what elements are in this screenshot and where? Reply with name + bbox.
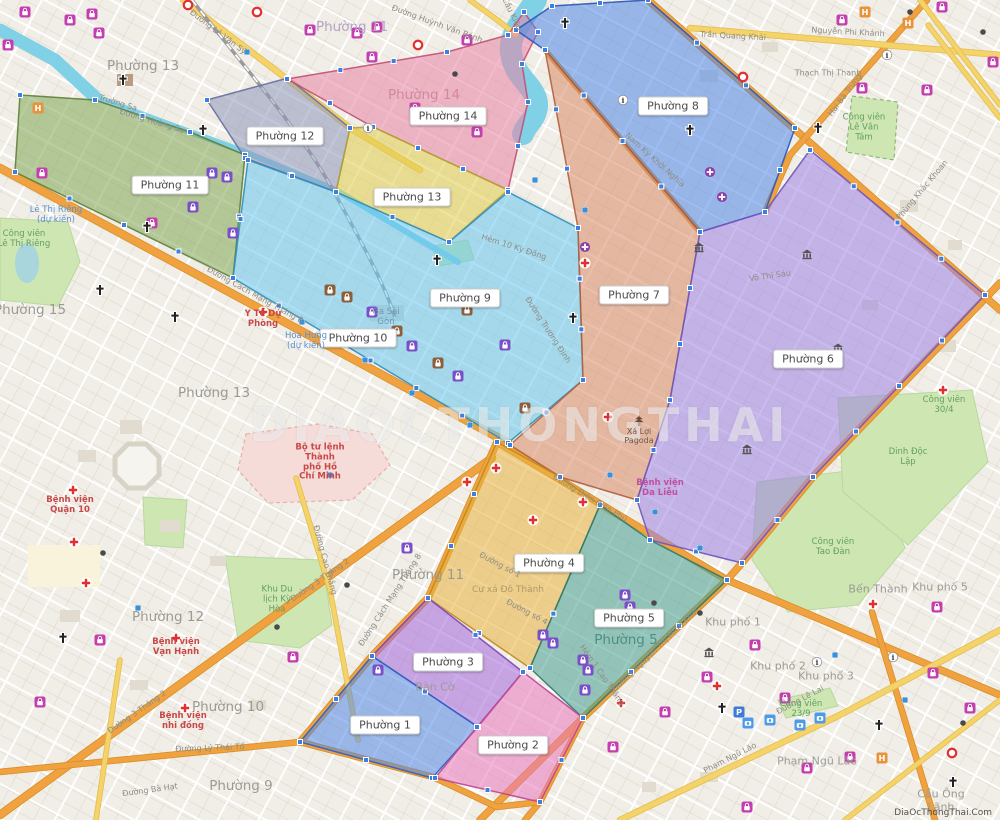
boundary-marker xyxy=(678,342,683,347)
boundary-marker xyxy=(433,776,438,781)
park-area xyxy=(846,96,898,160)
map-icon-bag[interactable] xyxy=(372,22,383,33)
map-icon-dot[interactable] xyxy=(452,71,458,77)
boundary-marker xyxy=(328,101,333,106)
building-block xyxy=(60,610,80,622)
building-block xyxy=(160,520,180,532)
map-icon-bag[interactable] xyxy=(660,707,671,718)
road xyxy=(620,630,1000,820)
boundary-marker xyxy=(514,28,519,33)
boundary-marker xyxy=(473,633,478,638)
boundary-marker xyxy=(334,697,339,702)
boundary-marker xyxy=(677,624,682,629)
map-icon-bus[interactable] xyxy=(532,177,538,183)
building-block xyxy=(130,680,148,690)
map-icon-med[interactable] xyxy=(491,463,502,474)
map-icon-bus[interactable] xyxy=(244,49,250,55)
ward-label-phuong-13[interactable]: Phường 13 xyxy=(374,188,451,207)
map-icon-lock[interactable] xyxy=(228,228,239,239)
map-icon-lock[interactable] xyxy=(373,665,384,676)
map-icon-dot[interactable] xyxy=(274,624,280,630)
boundary-marker xyxy=(426,596,431,601)
map-icon-lock[interactable] xyxy=(578,655,589,666)
map-icon-hotel[interactable] xyxy=(860,7,871,18)
map-icon-bag[interactable] xyxy=(3,40,14,51)
map-icon-med[interactable] xyxy=(616,698,627,709)
park-area xyxy=(0,218,80,306)
map-icon-lock[interactable] xyxy=(402,543,413,554)
boundary-marker xyxy=(391,59,396,64)
boundary-marker xyxy=(581,378,586,383)
boundary-marker xyxy=(629,670,634,675)
boundary-marker xyxy=(140,114,145,119)
map-icon-lockb[interactable] xyxy=(342,292,353,303)
ward-label-phuong-11[interactable]: Phường 11 xyxy=(132,176,209,195)
boundary-marker xyxy=(520,62,525,67)
boundary-marker xyxy=(688,286,693,291)
boundary-marker xyxy=(472,492,477,497)
park-area xyxy=(225,556,332,648)
boundary-marker xyxy=(581,93,586,98)
boundary-marker xyxy=(93,98,98,103)
boundary-marker xyxy=(648,538,653,543)
boundary-marker xyxy=(811,475,816,480)
map-icon-dot[interactable] xyxy=(697,610,703,616)
map-icon-lock[interactable] xyxy=(367,307,378,318)
ward-label-phuong-9[interactable]: Phường 9 xyxy=(430,289,500,308)
map-icon-info[interactable] xyxy=(363,123,373,133)
map-icon-bag[interactable] xyxy=(95,635,106,646)
map-icon-church[interactable] xyxy=(875,720,882,730)
boundary-marker xyxy=(897,384,902,389)
boundary-marker xyxy=(368,358,373,363)
map-icon-bag[interactable] xyxy=(65,15,76,26)
boundary-marker xyxy=(620,139,625,144)
boundary-marker xyxy=(565,166,570,171)
map-icon-plusp[interactable] xyxy=(705,167,715,177)
map-icon-bus[interactable] xyxy=(467,422,473,428)
map-icon-lock[interactable] xyxy=(222,172,233,183)
boundary-marker xyxy=(577,276,582,281)
boundary-marker xyxy=(526,100,531,105)
boundary-marker xyxy=(122,223,127,228)
map-icon-bus[interactable] xyxy=(902,697,908,703)
map-icon-med[interactable] xyxy=(180,703,191,714)
ward-label-phuong-3[interactable]: Phường 3 xyxy=(413,653,483,672)
boundary-marker xyxy=(579,327,584,332)
map-icon-med[interactable] xyxy=(578,497,589,508)
map-icon-bag[interactable] xyxy=(845,752,856,763)
map-icon-bag[interactable] xyxy=(305,25,316,36)
ward-label-phuong-1[interactable]: Phường 1 xyxy=(350,716,420,735)
boundary-marker xyxy=(506,33,511,38)
map-icon-lock[interactable] xyxy=(620,590,631,601)
boundary-marker xyxy=(18,93,23,98)
boundary-marker xyxy=(461,167,466,172)
map-icon-church[interactable] xyxy=(814,123,821,133)
boundary-marker xyxy=(543,48,548,53)
boundary-marker xyxy=(13,170,18,175)
boundary-marker xyxy=(695,40,700,45)
map-icon-med[interactable] xyxy=(462,477,473,488)
boundary-marker xyxy=(740,561,745,566)
map-icon-photo[interactable] xyxy=(743,718,754,729)
canal-water xyxy=(0,30,95,97)
map-icon-bag[interactable] xyxy=(988,57,999,68)
boundary-marker xyxy=(238,217,243,222)
building-block xyxy=(210,556,226,566)
map-icon-med[interactable] xyxy=(81,578,92,589)
map-icon-lock[interactable] xyxy=(583,665,594,676)
map-icon-med[interactable] xyxy=(603,412,614,423)
boundary-marker xyxy=(983,293,988,298)
map-icon-bag[interactable] xyxy=(462,35,473,46)
map-icon-dot[interactable] xyxy=(960,720,966,726)
map-icon-photo[interactable] xyxy=(795,720,806,731)
boundary-marker xyxy=(364,758,369,763)
boundary-marker xyxy=(538,800,543,805)
boundary-marker xyxy=(67,196,72,201)
map-icon-info[interactable] xyxy=(888,652,898,662)
ward-label-phuong-7[interactable]: Phường 7 xyxy=(599,286,669,305)
map-icon-plusp[interactable] xyxy=(580,242,590,252)
map-icon-bag[interactable] xyxy=(922,85,933,96)
map-icon-bag[interactable] xyxy=(367,52,378,63)
map-icon-bus[interactable] xyxy=(582,207,588,213)
map-icon-info[interactable] xyxy=(882,50,892,60)
map-icon-bag[interactable] xyxy=(87,9,98,20)
boundary-marker xyxy=(551,611,556,616)
building-block xyxy=(250,700,266,710)
map-icon-bag[interactable] xyxy=(352,28,363,39)
boundary-marker xyxy=(276,303,281,308)
attribution-text: DiaOcThongThai.Com xyxy=(894,808,992,818)
map-icon-med[interactable] xyxy=(938,385,949,396)
boundary-marker xyxy=(554,107,559,112)
boundary-marker xyxy=(939,256,944,261)
boundary-marker xyxy=(414,386,419,391)
map-icon-hotel[interactable] xyxy=(903,18,914,29)
map-icon-bus[interactable] xyxy=(362,357,368,363)
map-icon-lock[interactable] xyxy=(580,685,591,696)
map-icon-bus[interactable] xyxy=(327,472,333,478)
map-icon-bus[interactable] xyxy=(652,509,658,515)
ward-label-phuong-4[interactable]: Phường 4 xyxy=(514,554,584,573)
military-area xyxy=(238,424,390,503)
map-icon-med[interactable] xyxy=(69,537,80,548)
building-block xyxy=(948,240,962,250)
map-canvas[interactable]: i H P DIAOCTHONGTHAI Phường 11Phường 12P… xyxy=(0,0,1000,820)
map-icon-lock[interactable] xyxy=(407,341,418,352)
map-icon-ring[interactable] xyxy=(414,41,422,49)
boundary-marker xyxy=(449,544,454,549)
boundary-marker xyxy=(516,144,521,149)
map-icon-bag[interactable] xyxy=(965,703,976,714)
boundary-marker xyxy=(854,429,859,434)
map-icon-bus[interactable] xyxy=(607,472,613,478)
map-icon-bag[interactable] xyxy=(37,168,48,179)
boundary-marker xyxy=(559,758,564,763)
boundary-marker xyxy=(176,249,181,254)
map-icon-bag[interactable] xyxy=(608,742,619,753)
boundary-marker xyxy=(338,68,343,73)
boundary-marker xyxy=(598,503,603,508)
map-icon-bag[interactable] xyxy=(750,640,761,651)
map-icon-med[interactable] xyxy=(528,515,539,526)
map-icon-med[interactable] xyxy=(868,599,879,610)
map-icon-med[interactable] xyxy=(68,485,79,496)
map-icon-plusp[interactable] xyxy=(717,192,727,202)
map-icon-lock[interactable] xyxy=(548,638,559,649)
boundary-marker xyxy=(544,410,549,415)
boundary-marker xyxy=(851,184,856,189)
map-icon-lockb[interactable] xyxy=(433,358,444,369)
boundary-marker xyxy=(348,126,353,131)
boundary-marker xyxy=(775,518,780,523)
boundary-marker xyxy=(646,0,651,3)
boundary-marker xyxy=(744,83,749,88)
stadium-octagon xyxy=(115,444,159,488)
map-icon-museum[interactable] xyxy=(704,648,714,658)
boundary-marker xyxy=(460,413,465,418)
map-icon-lockb[interactable] xyxy=(520,403,531,414)
map-icon-bag[interactable] xyxy=(802,763,813,774)
map-icon-bag[interactable] xyxy=(472,127,483,138)
map-icon-parking[interactable] xyxy=(734,707,745,718)
boundary-marker xyxy=(508,443,513,448)
boundary-marker xyxy=(246,158,251,163)
boundary-marker xyxy=(536,30,541,35)
boundary-marker xyxy=(188,130,193,135)
boundary-marker xyxy=(290,174,295,179)
road xyxy=(845,700,1000,820)
map-icon-bus[interactable] xyxy=(299,319,305,325)
boundary-marker xyxy=(895,220,900,225)
map-icon-bag[interactable] xyxy=(857,83,868,94)
boundary-marker xyxy=(334,190,339,195)
map-icon-med[interactable] xyxy=(258,307,269,318)
map-icon-ring[interactable] xyxy=(739,73,747,81)
map-icon-bag[interactable] xyxy=(288,652,299,663)
boundary-marker xyxy=(808,148,813,153)
boundary-marker xyxy=(231,276,236,281)
map-icon-bag[interactable] xyxy=(837,15,848,26)
building-block xyxy=(762,42,778,52)
map-icon-bag[interactable] xyxy=(932,602,943,613)
map-icon-info[interactable] xyxy=(618,95,628,105)
boundary-marker xyxy=(423,689,428,694)
map-icon-bag[interactable] xyxy=(35,697,46,708)
map-icon-church[interactable] xyxy=(59,633,66,643)
boundary-marker xyxy=(506,190,511,195)
boundary-marker xyxy=(522,10,527,15)
map-icon-photo[interactable] xyxy=(815,713,826,724)
boundary-marker xyxy=(370,654,375,659)
boundary-marker xyxy=(725,578,730,583)
ward-label-phuong-10[interactable]: Phường 10 xyxy=(320,329,397,348)
ward-label-phuong-12[interactable]: Phường 12 xyxy=(247,127,324,146)
boundary-marker xyxy=(558,475,563,480)
boundary-marker xyxy=(793,126,798,131)
boundary-marker xyxy=(447,240,452,245)
map-icon-dot[interactable] xyxy=(344,582,350,588)
building-block xyxy=(642,782,656,792)
ward-label-phuong-2[interactable]: Phường 2 xyxy=(478,736,548,755)
map-icon-bag[interactable] xyxy=(702,672,713,683)
boundary-marker xyxy=(550,4,555,9)
map-icon-church[interactable] xyxy=(171,312,178,322)
map-icon-lock[interactable] xyxy=(188,202,199,213)
map-icon-bus[interactable] xyxy=(135,605,141,611)
map-overlay-svg: i H P xyxy=(0,0,1000,820)
map-icon-photo[interactable] xyxy=(765,715,776,726)
map-icon-bag[interactable] xyxy=(742,802,753,813)
map-icon-info[interactable] xyxy=(812,657,822,667)
map-icon-dot[interactable] xyxy=(100,550,106,556)
road xyxy=(928,25,1000,118)
road xyxy=(470,0,516,35)
map-icon-dot[interactable] xyxy=(651,600,657,606)
map-icon-hotel[interactable] xyxy=(33,103,44,114)
boundary-marker xyxy=(581,716,586,721)
boundary-marker xyxy=(205,98,210,103)
map-icon-lockb[interactable] xyxy=(325,285,336,296)
map-icon-dot[interactable] xyxy=(980,29,986,35)
map-icon-church[interactable] xyxy=(96,285,103,295)
boundary-marker xyxy=(698,230,703,235)
map-icon-bag[interactable] xyxy=(780,693,791,704)
map-icon-bag[interactable] xyxy=(94,28,105,39)
boundary-marker xyxy=(659,184,664,189)
map-icon-church[interactable] xyxy=(718,703,725,713)
boundary-marker xyxy=(445,50,450,55)
boundary-marker xyxy=(416,146,421,151)
map-icon-bag[interactable] xyxy=(20,7,31,18)
boundary-marker xyxy=(390,215,395,220)
boundary-marker xyxy=(576,226,581,231)
map-icon-bus[interactable] xyxy=(409,390,415,396)
boundary-marker xyxy=(940,338,945,343)
map-icon-med[interactable] xyxy=(580,258,591,269)
map-icon-med[interactable] xyxy=(171,633,182,644)
building-block xyxy=(900,200,918,212)
map-icon-dot[interactable] xyxy=(907,9,913,15)
building-block xyxy=(78,450,96,462)
park-pond xyxy=(15,243,39,283)
boundary-marker xyxy=(298,740,303,745)
ward-label-phuong-5[interactable]: Phường 5 xyxy=(594,609,664,628)
map-icon-lock[interactable] xyxy=(453,371,464,382)
boundary-marker xyxy=(668,398,673,403)
boundary-marker xyxy=(528,666,533,671)
map-icon-bag[interactable] xyxy=(937,2,948,13)
boundary-marker xyxy=(475,725,480,730)
map-icon-hotel[interactable] xyxy=(877,753,888,764)
map-icon-lock[interactable] xyxy=(538,630,549,641)
map-icon-bus[interactable] xyxy=(832,652,838,658)
ward-label-phuong-8[interactable]: Phường 8 xyxy=(638,97,708,116)
boundary-marker xyxy=(495,440,500,445)
boundary-marker xyxy=(778,168,783,173)
map-icon-ring[interactable] xyxy=(948,749,956,757)
map-icon-church[interactable] xyxy=(949,777,956,787)
ward-label-phuong-14[interactable]: Phường 14 xyxy=(410,107,487,126)
map-icon-med[interactable] xyxy=(712,681,723,692)
boundary-marker xyxy=(485,788,490,793)
building-block xyxy=(120,420,142,434)
map-icon-lock[interactable] xyxy=(500,340,511,351)
boundary-marker xyxy=(521,670,526,675)
ward-label-phuong-6[interactable]: Phường 6 xyxy=(773,350,843,369)
boundary-marker xyxy=(651,448,656,453)
boundary-marker xyxy=(285,77,290,82)
boundary-marker xyxy=(635,498,640,503)
boundary-marker xyxy=(598,1,603,6)
boundary-marker xyxy=(763,210,768,215)
map-icon-ring[interactable] xyxy=(184,1,192,9)
map-icon-ring[interactable] xyxy=(253,8,261,16)
map-icon-bag[interactable] xyxy=(928,668,939,679)
map-icon-bus[interactable] xyxy=(697,545,703,551)
